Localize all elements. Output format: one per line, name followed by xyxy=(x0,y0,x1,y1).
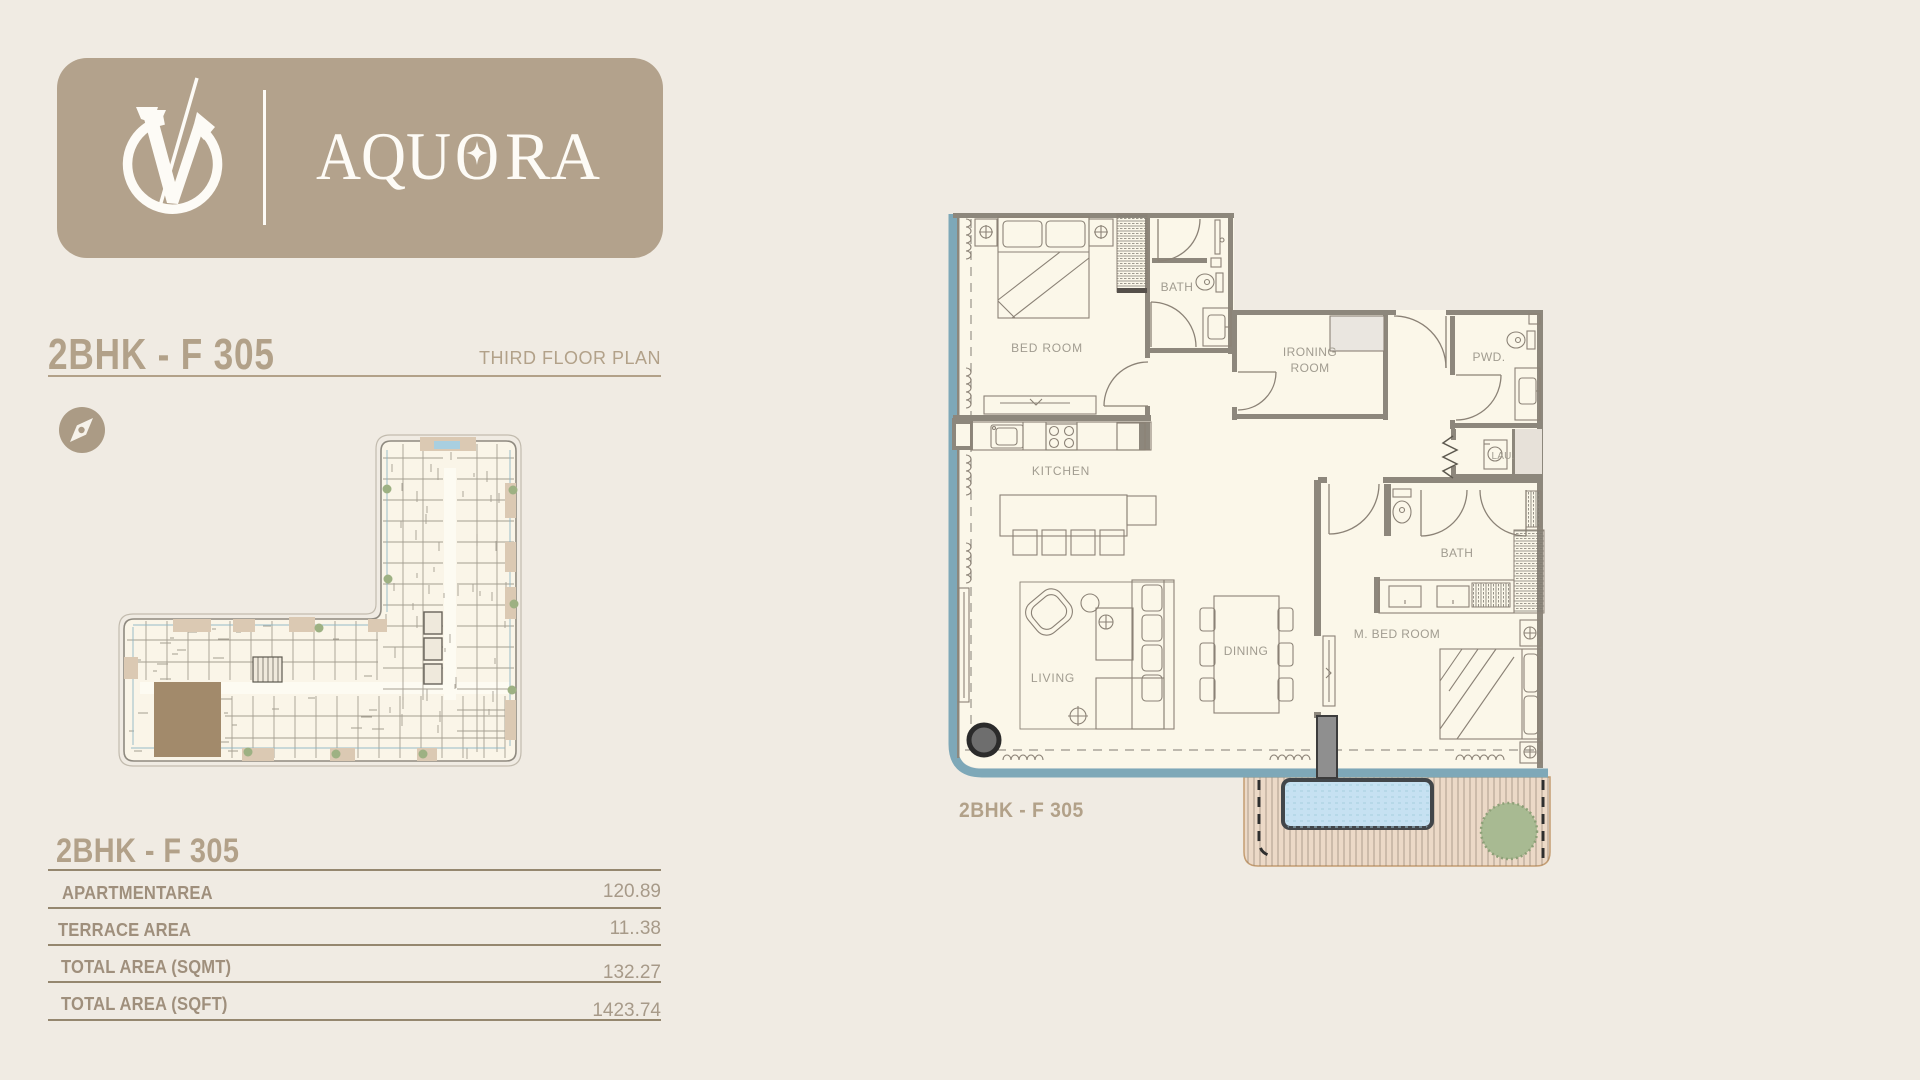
svg-text:AQU: AQU xyxy=(316,118,451,194)
svg-text:KITCHEN: KITCHEN xyxy=(1032,464,1090,478)
svg-text:ROOM: ROOM xyxy=(1291,361,1330,375)
svg-text:M. BED ROOM: M. BED ROOM xyxy=(1354,627,1440,641)
svg-text:BATH: BATH xyxy=(1441,546,1474,560)
svg-text:IRONING: IRONING xyxy=(1283,345,1337,359)
svg-text:BATH: BATH xyxy=(1161,280,1194,294)
svg-text:DINING: DINING xyxy=(1224,644,1268,658)
svg-text:PWD.: PWD. xyxy=(1473,350,1506,364)
svg-text:LAU.: LAU. xyxy=(1491,451,1514,462)
svg-text:BED ROOM: BED ROOM xyxy=(1011,341,1083,355)
svg-text:RA: RA xyxy=(505,118,600,194)
svg-text:LIVING: LIVING xyxy=(1031,671,1075,685)
